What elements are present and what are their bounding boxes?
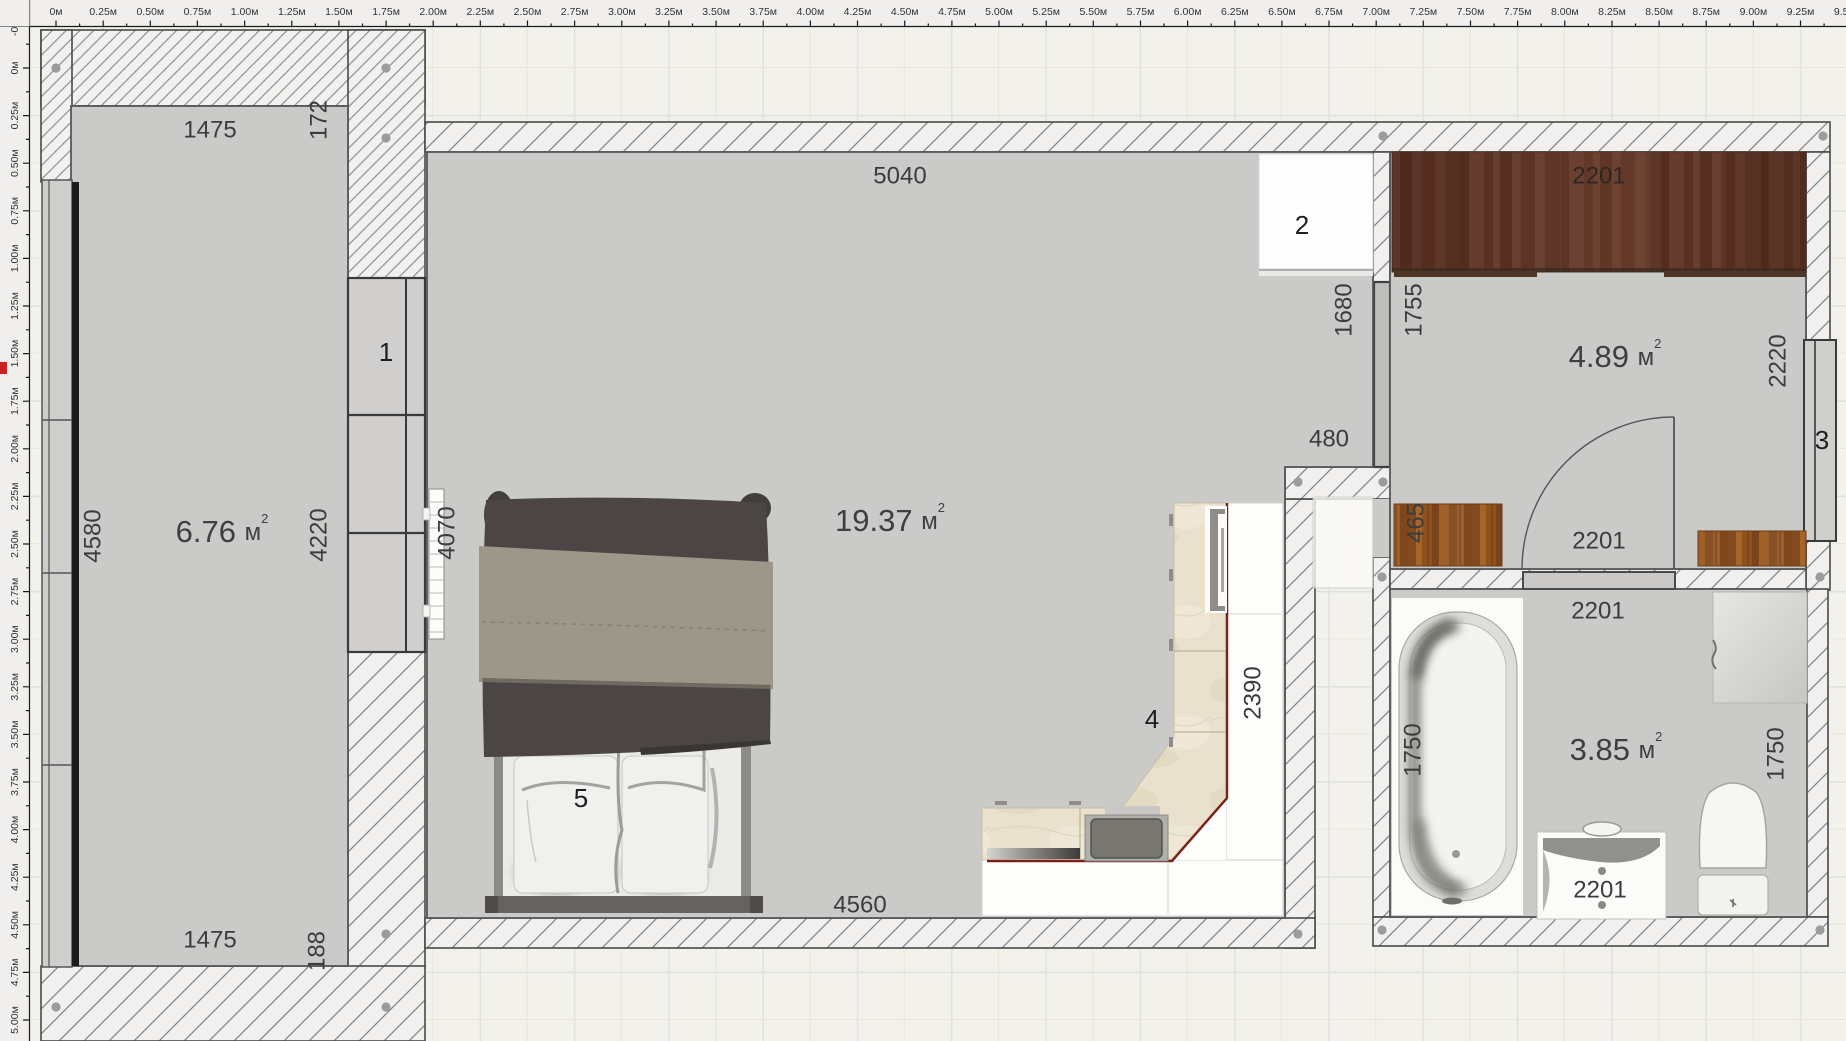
svg-text:2220: 2220 (1764, 334, 1791, 387)
svg-text:1.00м: 1.00м (231, 6, 259, 18)
svg-text:1750: 1750 (1399, 723, 1426, 776)
svg-text:1.00м: 1.00м (9, 245, 21, 273)
svg-text:8.25м: 8.25м (1598, 6, 1626, 18)
svg-text:0.25м: 0.25м (9, 102, 21, 130)
svg-text:9.00м: 9.00м (1740, 6, 1768, 18)
svg-text:4.25м: 4.25м (844, 6, 872, 18)
svg-text:4560: 4560 (833, 891, 886, 918)
svg-text:8.50м: 8.50м (1645, 6, 1673, 18)
svg-text:2.25м: 2.25м (9, 483, 21, 511)
svg-text:7.00м: 7.00м (1362, 6, 1390, 18)
svg-text:4.00м: 4.00м (9, 816, 21, 844)
svg-text:0м: 0м (9, 61, 21, 74)
svg-text:5.00м: 5.00м (985, 6, 1013, 18)
svg-text:2.00м: 2.00м (419, 6, 447, 18)
svg-text:4.50м: 4.50м (9, 911, 21, 939)
svg-text:2201: 2201 (1572, 527, 1625, 554)
svg-text:2.50м: 2.50м (514, 6, 542, 18)
svg-text:6.00м: 6.00м (1174, 6, 1202, 18)
svg-text:4.75м: 4.75м (9, 959, 21, 987)
svg-text:7.50м: 7.50м (1457, 6, 1485, 18)
svg-text:188: 188 (303, 931, 330, 971)
svg-text:5.00м: 5.00м (9, 1006, 21, 1034)
svg-text:2.75м: 2.75м (9, 578, 21, 606)
svg-text:1750: 1750 (1762, 727, 1789, 780)
svg-text:5.25м: 5.25м (1032, 6, 1060, 18)
svg-text:1.75м: 1.75м (372, 6, 400, 18)
svg-text:6.50м: 6.50м (1268, 6, 1296, 18)
svg-text:3.25м: 3.25м (9, 673, 21, 701)
svg-text:0.50м: 0.50м (9, 149, 21, 177)
svg-text:1475: 1475 (183, 116, 236, 143)
svg-text:4.25м: 4.25м (9, 863, 21, 891)
svg-text:3.00м: 3.00м (608, 6, 636, 18)
svg-text:1.50м: 1.50м (9, 340, 21, 368)
svg-text:480: 480 (1309, 425, 1349, 452)
svg-text:5: 5 (574, 783, 588, 813)
svg-text:0м: 0м (49, 6, 62, 18)
svg-text:1475: 1475 (183, 926, 236, 953)
svg-text:0.25м: 0.25м (89, 6, 117, 18)
svg-text:1.25м: 1.25м (278, 6, 306, 18)
svg-text:1.25м: 1.25м (9, 292, 21, 320)
svg-text:5.50м: 5.50м (1079, 6, 1107, 18)
svg-text:7.75м: 7.75м (1504, 6, 1532, 18)
svg-text:1.75м: 1.75м (9, 387, 21, 415)
svg-text:1.50м: 1.50м (325, 6, 353, 18)
svg-text:4.00м: 4.00м (797, 6, 825, 18)
svg-text:2.75м: 2.75м (561, 6, 589, 18)
svg-text:2.00м: 2.00м (9, 435, 21, 463)
svg-text:4070: 4070 (433, 506, 460, 559)
svg-text:4.50м: 4.50м (891, 6, 919, 18)
svg-text:7.25м: 7.25м (1409, 6, 1437, 18)
svg-text:0.75м: 0.75м (9, 197, 21, 225)
svg-text:4.75м: 4.75м (938, 6, 966, 18)
svg-text:5040: 5040 (873, 162, 926, 189)
svg-text:2.50м: 2.50м (9, 530, 21, 558)
svg-text:9.25м: 9.25м (1787, 6, 1815, 18)
svg-text:4: 4 (1145, 704, 1159, 734)
svg-text:6.25м: 6.25м (1221, 6, 1249, 18)
svg-text:2201: 2201 (1572, 162, 1625, 189)
svg-text:4580: 4580 (79, 509, 106, 562)
svg-text:3.50м: 3.50м (702, 6, 730, 18)
svg-text:3.50м: 3.50м (9, 721, 21, 749)
svg-text:1680: 1680 (1330, 283, 1357, 336)
svg-text:0.50м: 0.50м (136, 6, 164, 18)
svg-text:6.75м: 6.75м (1315, 6, 1343, 18)
svg-text:172: 172 (305, 100, 332, 140)
svg-text:4220: 4220 (305, 508, 332, 561)
svg-text:3.75м: 3.75м (749, 6, 777, 18)
svg-text:9.50м: 9.50м (1834, 6, 1846, 18)
svg-text:465: 465 (1402, 503, 1429, 543)
svg-text:1755: 1755 (1400, 283, 1427, 336)
svg-text:8.00м: 8.00м (1551, 6, 1579, 18)
svg-text:5.75м: 5.75м (1127, 6, 1155, 18)
svg-text:3: 3 (1815, 425, 1829, 455)
svg-text:2201: 2201 (1573, 876, 1626, 903)
svg-text:2201: 2201 (1571, 597, 1624, 624)
svg-text:0.75м: 0.75м (184, 6, 212, 18)
svg-text:1: 1 (379, 337, 393, 367)
svg-text:2: 2 (1295, 210, 1309, 240)
svg-text:8.75м: 8.75м (1692, 6, 1720, 18)
svg-text:3.00м: 3.00м (9, 625, 21, 653)
svg-text:3.25м: 3.25м (655, 6, 683, 18)
svg-text:2.25м: 2.25м (466, 6, 494, 18)
svg-text:3.75м: 3.75м (9, 768, 21, 796)
svg-text:2390: 2390 (1239, 666, 1266, 719)
